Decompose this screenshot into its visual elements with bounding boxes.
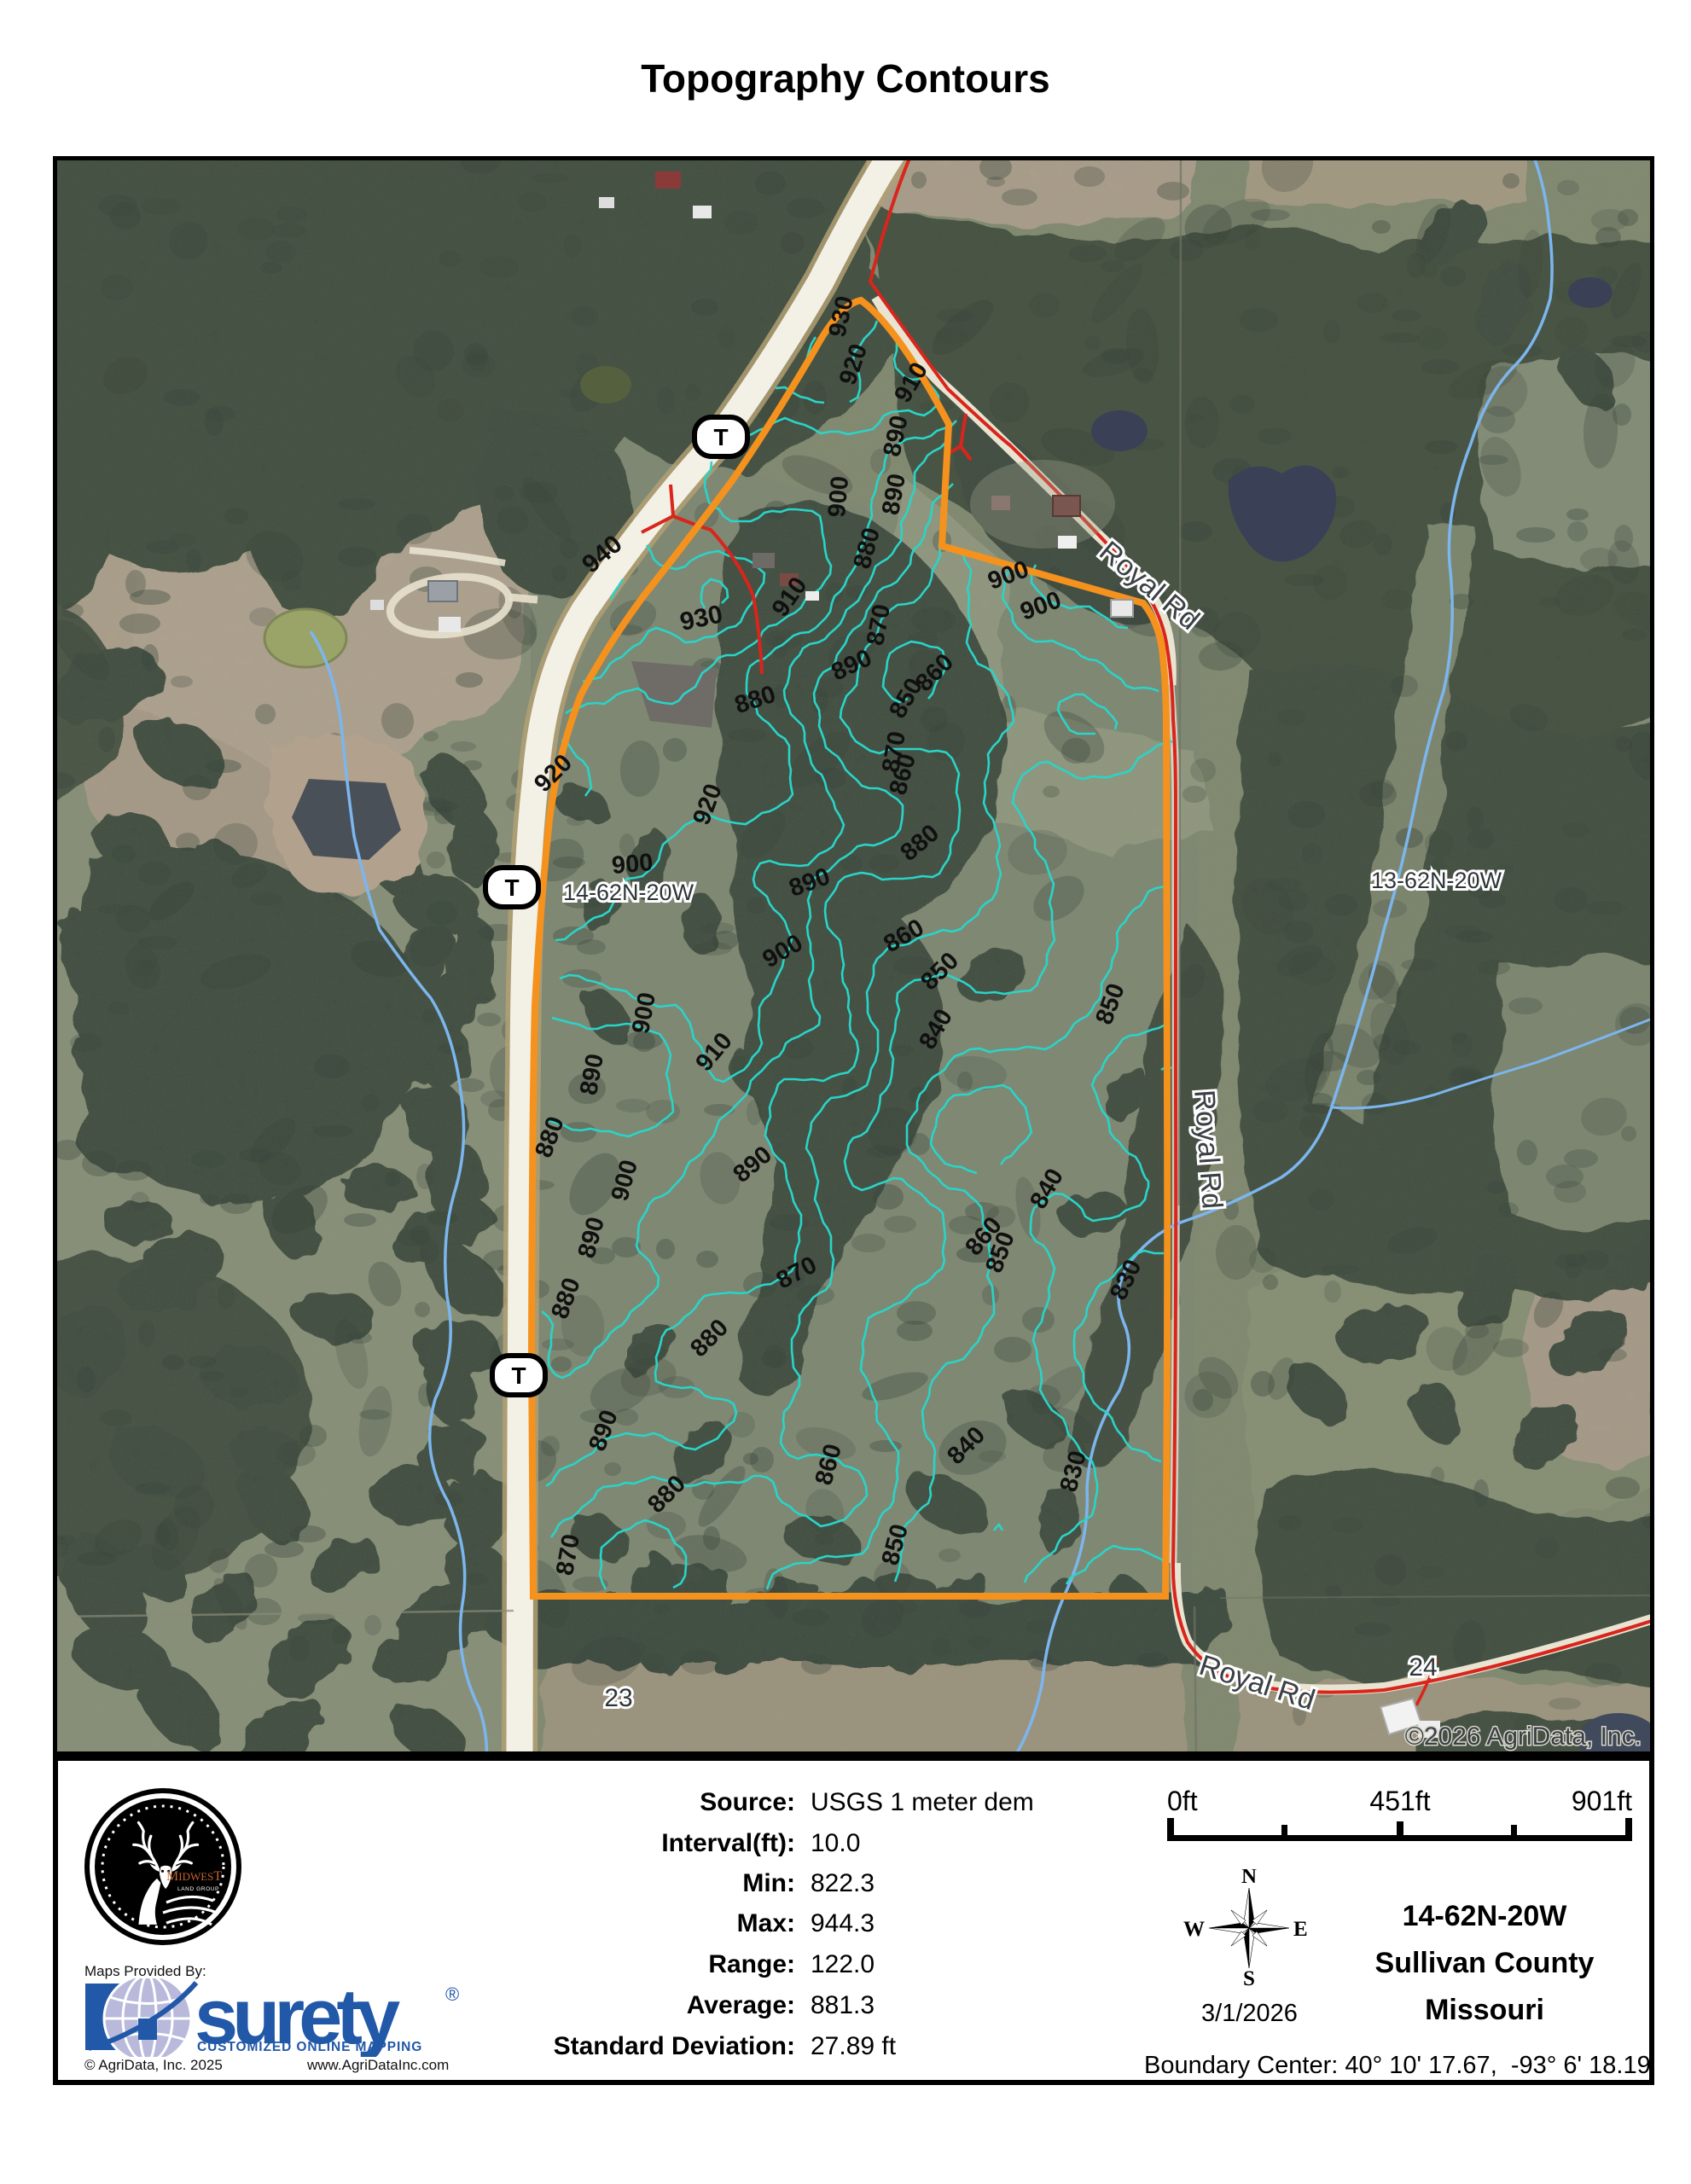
svg-text:900: 900 bbox=[611, 849, 654, 880]
svg-text:13-62N-20W: 13-62N-20W bbox=[1371, 868, 1502, 893]
svg-text:0ft: 0ft bbox=[1167, 1786, 1198, 1816]
svg-text:23: 23 bbox=[604, 1684, 632, 1712]
svg-text:T: T bbox=[713, 424, 728, 450]
svg-text:S: S bbox=[1243, 1967, 1255, 1989]
svg-text:901ft: 901ft bbox=[1572, 1786, 1632, 1816]
svg-text:W: W bbox=[1183, 1918, 1205, 1941]
svg-text:900: 900 bbox=[823, 475, 854, 519]
svg-text:T: T bbox=[511, 1362, 526, 1389]
svg-text:24: 24 bbox=[1409, 1653, 1437, 1682]
svg-text:14-62N-20W: 14-62N-20W bbox=[563, 880, 694, 905]
svg-text:451ft: 451ft bbox=[1369, 1786, 1430, 1816]
svg-text:E: E bbox=[1293, 1918, 1308, 1941]
svg-text:N: N bbox=[1241, 1869, 1257, 1888]
svg-text:©2026 AgriData, Inc.: ©2026 AgriData, Inc. bbox=[1405, 1722, 1642, 1751]
svg-text:T: T bbox=[504, 874, 519, 901]
